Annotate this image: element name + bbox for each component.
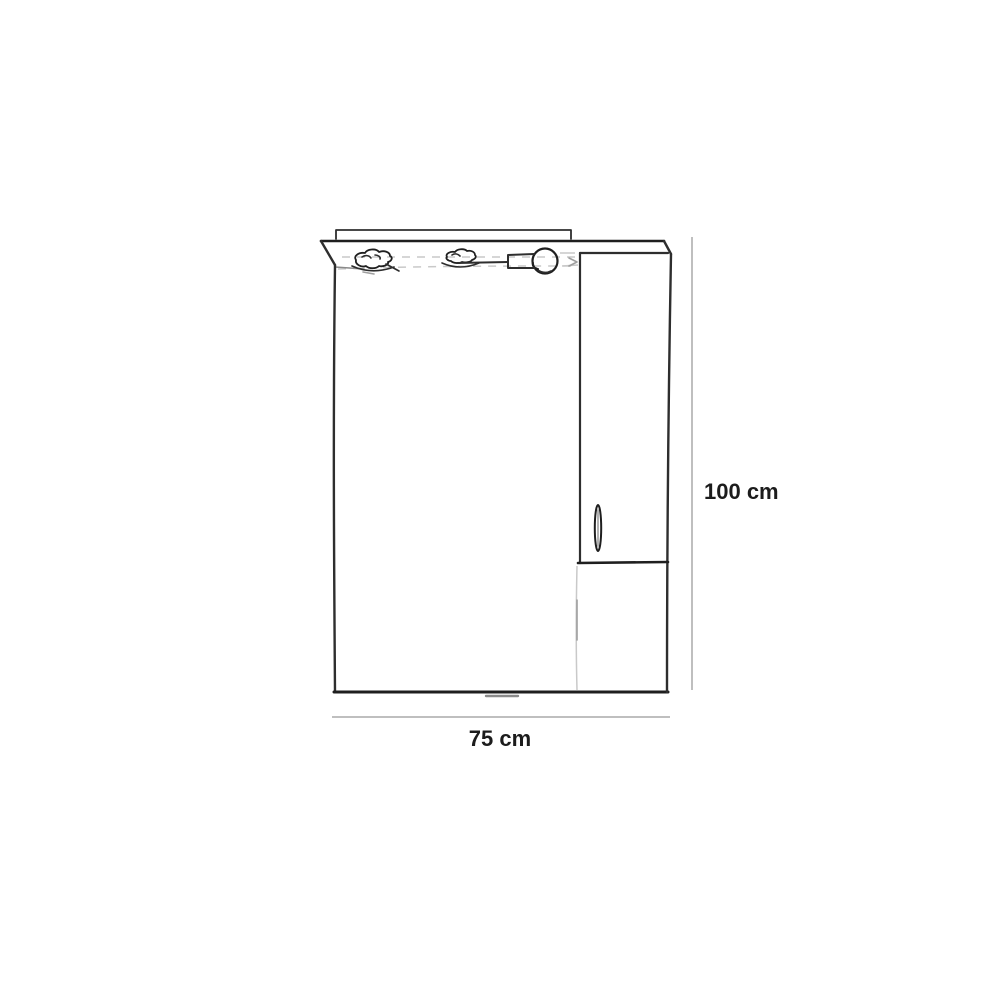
product-dimension-diagram: 75 cm 100 cm	[0, 0, 1000, 1000]
mirror-panel	[334, 254, 671, 696]
width-dimension-label: 75 cm	[420, 726, 580, 752]
side-cabinet-door	[578, 253, 668, 563]
dimension-lines	[332, 237, 692, 717]
door-handle-icon	[595, 505, 601, 551]
sconce-light-icon	[352, 249, 399, 274]
sconce-light-icon	[442, 249, 479, 267]
height-dimension-label: 100 cm	[704, 479, 779, 505]
furniture-line-drawing	[0, 0, 1000, 1000]
bulb-light-icon	[457, 249, 578, 274]
lower-side-panel	[576, 566, 577, 690]
